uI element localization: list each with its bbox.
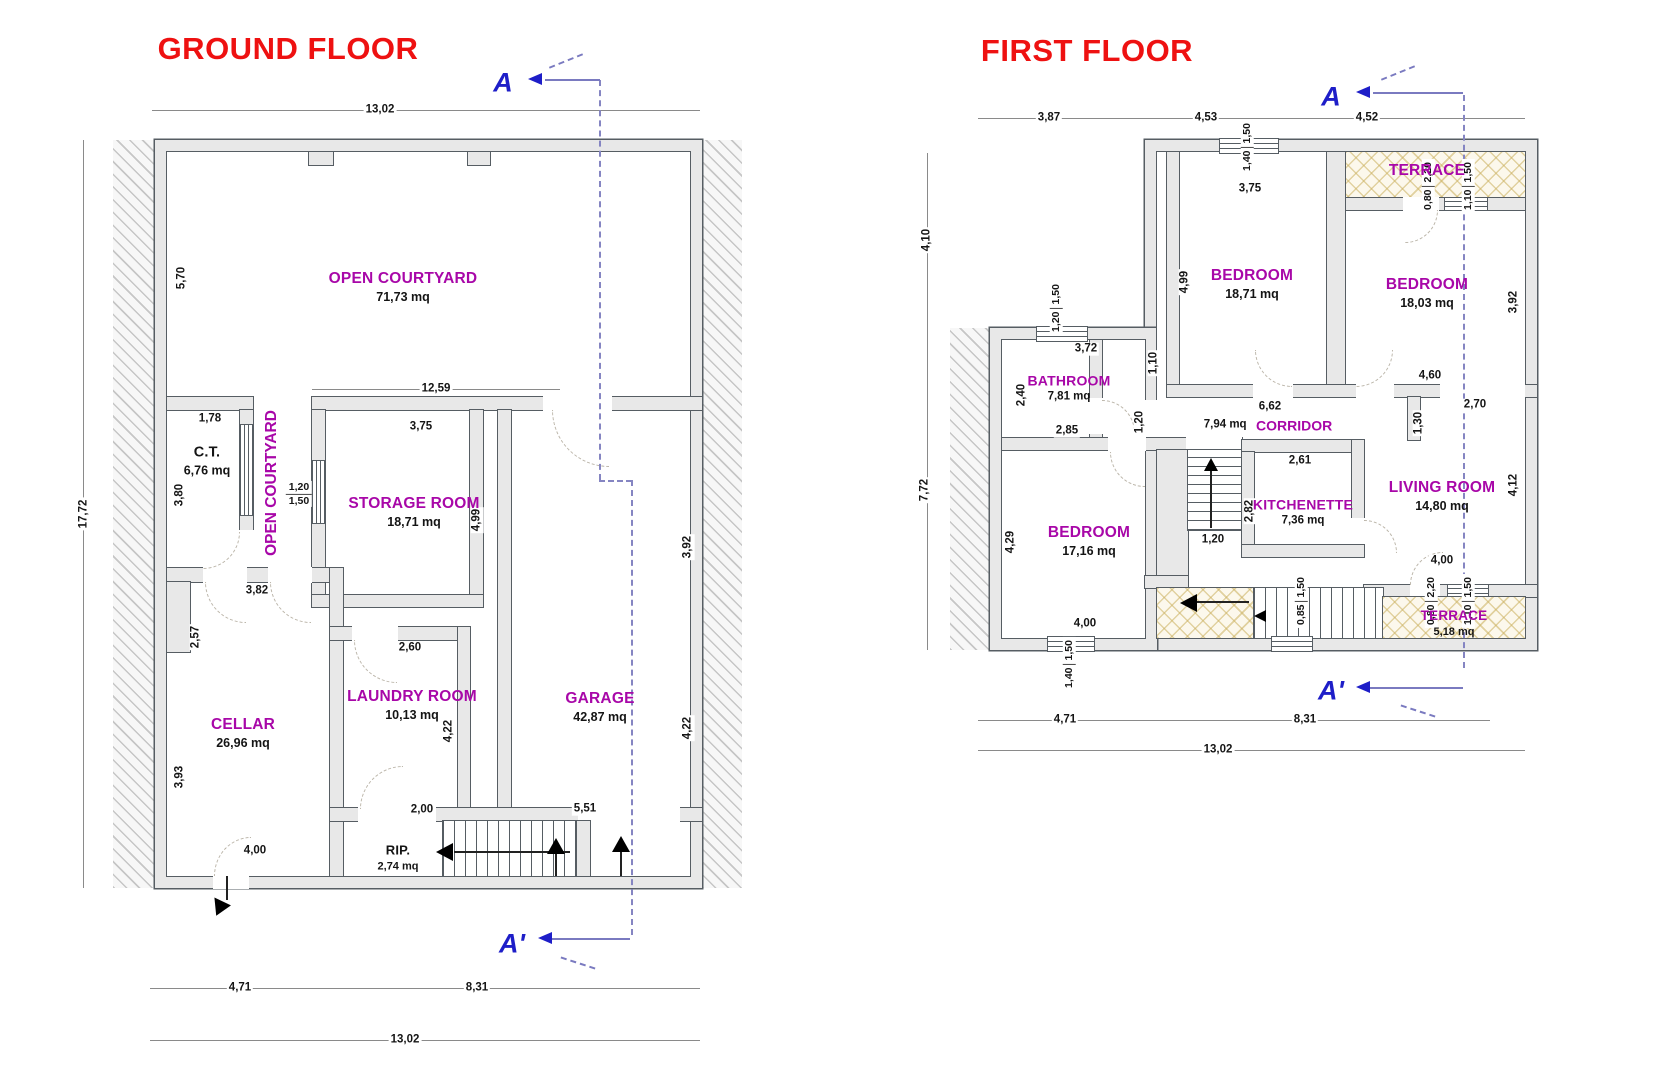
dim-label: 3,80 (174, 482, 187, 508)
room-area: 10,13 mq (347, 707, 477, 723)
room-area: 7,81 mq (1028, 390, 1111, 405)
room-area: 7,94 mq (1204, 418, 1247, 433)
room-name: CORRIDOR (1256, 416, 1332, 434)
room-area: 2,74 mq (378, 859, 419, 873)
ground-floor-title: GROUND FLOOR (158, 31, 419, 67)
room-open-courtyard-vertical: OPEN COURTYARD (263, 410, 281, 556)
gf-leader (548, 938, 630, 940)
dim-label: 3,92 (1508, 289, 1521, 315)
room-area: 42,87 mq (565, 709, 634, 725)
dim-label: 1,20 (1200, 534, 1226, 547)
gf-hatch-right (702, 140, 742, 888)
gf-wall (498, 410, 511, 813)
ff-wall (1242, 545, 1364, 557)
ff-leader-dash (1381, 65, 1415, 80)
room-name: LAUNDRY ROOM (347, 687, 477, 707)
ff-leader-dash (1401, 704, 1436, 717)
gf-door-opening (268, 567, 312, 583)
room-name: BEDROOM (1048, 523, 1130, 543)
dim-label: 0,80 (1422, 186, 1435, 213)
gf-door-opening (203, 567, 247, 583)
gf-wall (330, 627, 470, 640)
room-name: BEDROOM (1386, 275, 1468, 295)
dim-line (152, 110, 700, 111)
entry-arrow-stem (555, 854, 557, 876)
ff-wall (1167, 152, 1179, 397)
dim-label: 4,99 (1179, 269, 1192, 295)
floor-plan-canvas: GROUND FLOOR A A (0, 0, 1662, 1080)
landing-arrow-stem (1197, 601, 1249, 603)
gf-door-opening (352, 626, 398, 641)
room-rip: RIP. 2,74 mq (378, 842, 419, 873)
room-name: OPEN COURTYARD (329, 269, 478, 289)
ff-stairs-lower (1254, 588, 1383, 638)
dim-label: 13,02 (389, 1034, 422, 1047)
dim-window-pair: 0,85 1,50 (1295, 574, 1308, 628)
dim-label: 1,50 (1241, 120, 1254, 146)
dim-label: 3,75 (1237, 183, 1263, 196)
dim-label: 2,00 (409, 804, 435, 817)
ff-leader (1373, 92, 1463, 94)
dim-label: 2,60 (397, 642, 423, 655)
dim-label: 3,82 (244, 585, 270, 598)
stairs-arrow-icon (1254, 610, 1266, 622)
dim-label: 8,31 (464, 982, 490, 995)
room-area: 5,18 mq (1421, 625, 1488, 639)
first-floor-title: FIRST FLOOR (981, 33, 1193, 69)
dim-label: 1,50 (286, 494, 312, 508)
dim-label: 5,51 (572, 803, 598, 816)
room-bedroom-2: BEDROOM 18,03 mq (1386, 275, 1468, 311)
dim-label: 1,50 (1063, 637, 1076, 663)
gf-wall-stub (468, 152, 490, 165)
dim-label: 1,20 (1134, 409, 1147, 435)
dim-window-pair: 1,40 1,50 (1241, 120, 1254, 174)
dim-label: 2,40 (1016, 382, 1029, 408)
dim-label: 2,70 (1462, 399, 1488, 412)
entry-arrow-icon (547, 838, 565, 854)
dim-label: 2,61 (1287, 455, 1313, 468)
ff-hatch-left (950, 328, 990, 650)
room-area: 26,96 mq (211, 735, 275, 751)
room-bedroom-3: BEDROOM 17,16 mq (1048, 523, 1130, 559)
dim-label: 4,29 (1005, 529, 1018, 555)
room-area: 7,36 mq (1253, 514, 1353, 529)
dim-label: 2,85 (1054, 425, 1080, 438)
dim-label: 13,02 (364, 104, 397, 117)
room-living: LIVING ROOM 14,80 mq (1389, 478, 1495, 514)
garage-arrow-stem (620, 852, 622, 876)
room-name: KITCHENETTE (1253, 495, 1353, 513)
gf-wall (330, 568, 343, 876)
dim-label: 1,50 (1295, 574, 1308, 600)
room-area: 17,16 mq (1048, 543, 1130, 559)
dim-window-pair: 1,20 1,50 (286, 481, 312, 507)
dim-label: 1,10 (1462, 186, 1475, 213)
room-area: 18,71 mq (348, 514, 479, 530)
gf-window-storage (313, 461, 324, 523)
room-name: C.T. (184, 443, 231, 462)
room-name: LIVING ROOM (1389, 478, 1495, 498)
room-name: TERRACE (1389, 161, 1465, 181)
gf-door-opening (239, 530, 254, 570)
ff-section-marker-a-prime: A' (1318, 676, 1344, 707)
room-area: 18,71 mq (1211, 286, 1293, 302)
room-name: BEDROOM (1211, 266, 1293, 286)
gf-wall (312, 397, 702, 410)
dim-label: 4,71 (227, 982, 253, 995)
dim-label: 4,12 (1508, 472, 1521, 498)
ff-wall (1145, 576, 1188, 588)
ff-wall (1327, 152, 1345, 397)
dim-label: 13,02 (1202, 744, 1235, 757)
room-area: 71,73 mq (329, 289, 478, 305)
dim-line (978, 750, 1525, 751)
room-name: GARAGE (565, 689, 634, 709)
gf-entrance-opening (213, 875, 249, 889)
room-terrace-bottom: TERRACE 5,18 mq (1421, 607, 1488, 639)
room-area: 6,76 mq (184, 462, 231, 478)
gf-wall-notch (167, 582, 190, 652)
room-ct: C.T. 6,76 mq (184, 443, 231, 478)
dim-label: 12,59 (420, 383, 453, 396)
ff-opening (1440, 384, 1525, 398)
room-name: CELLAR (211, 715, 275, 735)
dim-label: 1,40 (1241, 147, 1254, 174)
stairs-arrow-icon (1204, 458, 1218, 471)
dim-label: 4,00 (1072, 618, 1098, 631)
room-terrace-top: TERRACE (1389, 161, 1465, 181)
gf-wall (577, 821, 590, 876)
ff-leader (1366, 687, 1463, 689)
dim-line (150, 1040, 700, 1041)
ff-leader-arrow-icon (1356, 681, 1370, 693)
dim-label: 1,78 (197, 413, 223, 426)
dim-label: 4,52 (1354, 112, 1380, 125)
room-name: STORAGE ROOM (348, 494, 479, 514)
dim-label: 4,10 (921, 227, 934, 253)
room-open-courtyard: OPEN COURTYARD 71,73 mq (329, 269, 478, 305)
dim-label: 1,20 (1050, 308, 1063, 335)
dim-label: 1,30 (1413, 410, 1426, 436)
ff-wall (1157, 450, 1188, 588)
gf-section-marker-a: A (493, 68, 513, 99)
room-garage: GARAGE 42,87 mq (565, 689, 634, 725)
entrance-arrow-stem (226, 876, 228, 900)
gf-leader-arrow-icon (528, 73, 542, 85)
stairs-arrow-icon (436, 843, 453, 861)
landing-arrow-icon (1180, 594, 1197, 612)
dim-label: 6,62 (1257, 401, 1283, 414)
room-name: BATHROOM (1028, 371, 1111, 389)
dim-label: 2,20 (1425, 574, 1438, 600)
ff-window (1272, 637, 1312, 651)
dim-label: 4,00 (1429, 555, 1455, 568)
ff-leader-arrow-icon (1356, 86, 1370, 98)
gf-leader-arrow-icon (538, 932, 552, 944)
dim-label: 1,50 (1462, 574, 1475, 600)
dim-label: 1,50 (1050, 281, 1063, 307)
dim-label: 2,57 (190, 624, 203, 650)
room-name: RIP. (378, 842, 419, 859)
dim-label: 4,60 (1417, 370, 1443, 383)
room-storage: STORAGE ROOM 18,71 mq (348, 494, 479, 530)
dim-label: 4,53 (1193, 112, 1219, 125)
room-name: TERRACE (1421, 607, 1488, 625)
gf-wall (167, 397, 253, 410)
room-cellar: CELLAR 26,96 mq (211, 715, 275, 751)
ff-wall (1242, 440, 1364, 452)
dim-label: 1,40 (1063, 664, 1076, 691)
dim-label: 3,93 (174, 764, 187, 790)
stairs-arrow-stem (1210, 470, 1212, 528)
gf-wall-stub (309, 152, 333, 165)
room-laundry: LAUNDRY ROOM 10,13 mq (347, 687, 477, 723)
ff-door-opening (1108, 437, 1146, 451)
gf-window-ct (241, 425, 252, 515)
dim-label: 7,72 (919, 477, 932, 503)
dim-window-pair: 1,20 1,50 (1050, 281, 1063, 335)
gf-leader-dash (561, 956, 596, 969)
dim-label: 1,20 (286, 481, 312, 494)
dim-label: 8,31 (1292, 714, 1318, 727)
dim-label: 3,87 (1036, 112, 1062, 125)
ff-section-marker-a: A (1321, 82, 1341, 113)
gf-leader (545, 79, 600, 81)
room-bathroom: BATHROOM 7,81 mq (1028, 371, 1111, 404)
gf-section-marker-a-prime: A' (499, 929, 525, 960)
gf-section-line (599, 80, 601, 480)
dim-label: 0,85 (1295, 601, 1308, 628)
dim-label: 3,72 (1073, 343, 1099, 356)
room-corridor: 7,94 mq CORRIDOR (1204, 416, 1333, 437)
dim-label: 17,72 (78, 498, 91, 531)
dim-label: 1,10 (1148, 350, 1161, 376)
ff-stairs-opening (1186, 437, 1242, 451)
room-area: 18,03 mq (1386, 295, 1468, 311)
ff-landing (1157, 588, 1254, 638)
dim-label: 4,71 (1052, 714, 1078, 727)
room-kitchenette: KITCHENETTE 7,36 mq (1253, 495, 1353, 528)
gf-section-line (599, 480, 632, 482)
garage-arrow-icon (612, 836, 630, 852)
room-area: 14,80 mq (1389, 498, 1495, 514)
dim-label: 4,22 (682, 715, 695, 741)
dim-label: 3,92 (682, 534, 695, 560)
dim-label: 4,00 (242, 845, 268, 858)
gf-hatch-left (113, 140, 155, 888)
gf-wall (458, 627, 470, 820)
dim-window-pair: 1,40 1,50 (1063, 637, 1076, 691)
room-bedroom-1: BEDROOM 18,71 mq (1211, 266, 1293, 302)
dim-label: 5,70 (176, 265, 189, 291)
dim-label: 3,75 (408, 421, 434, 434)
gf-leader-dash (549, 53, 583, 68)
